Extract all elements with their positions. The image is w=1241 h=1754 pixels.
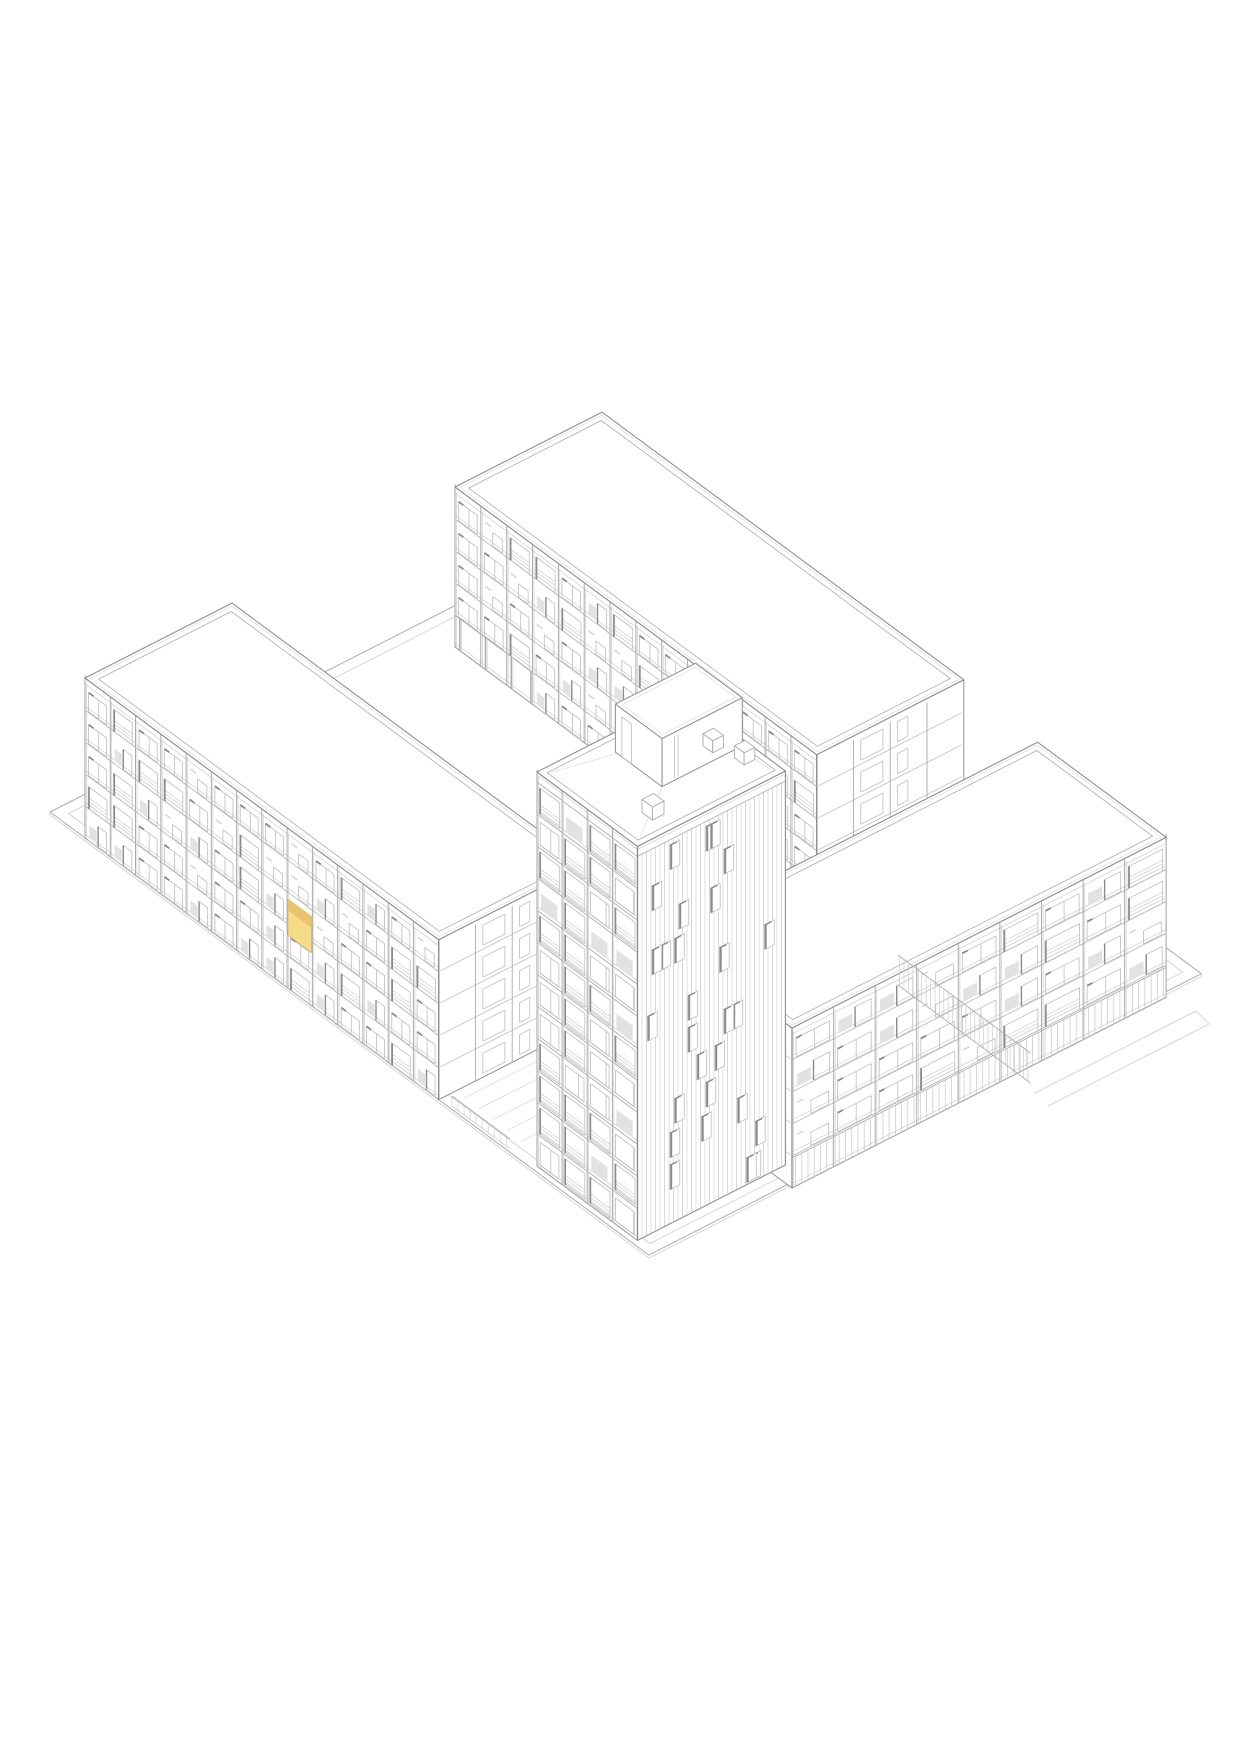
tower-southwest-facade <box>537 770 638 1240</box>
drawing-stage <box>0 0 1241 1754</box>
tower-southeast-facade <box>638 771 786 1240</box>
axonometric-building-drawing <box>0 0 1241 1754</box>
